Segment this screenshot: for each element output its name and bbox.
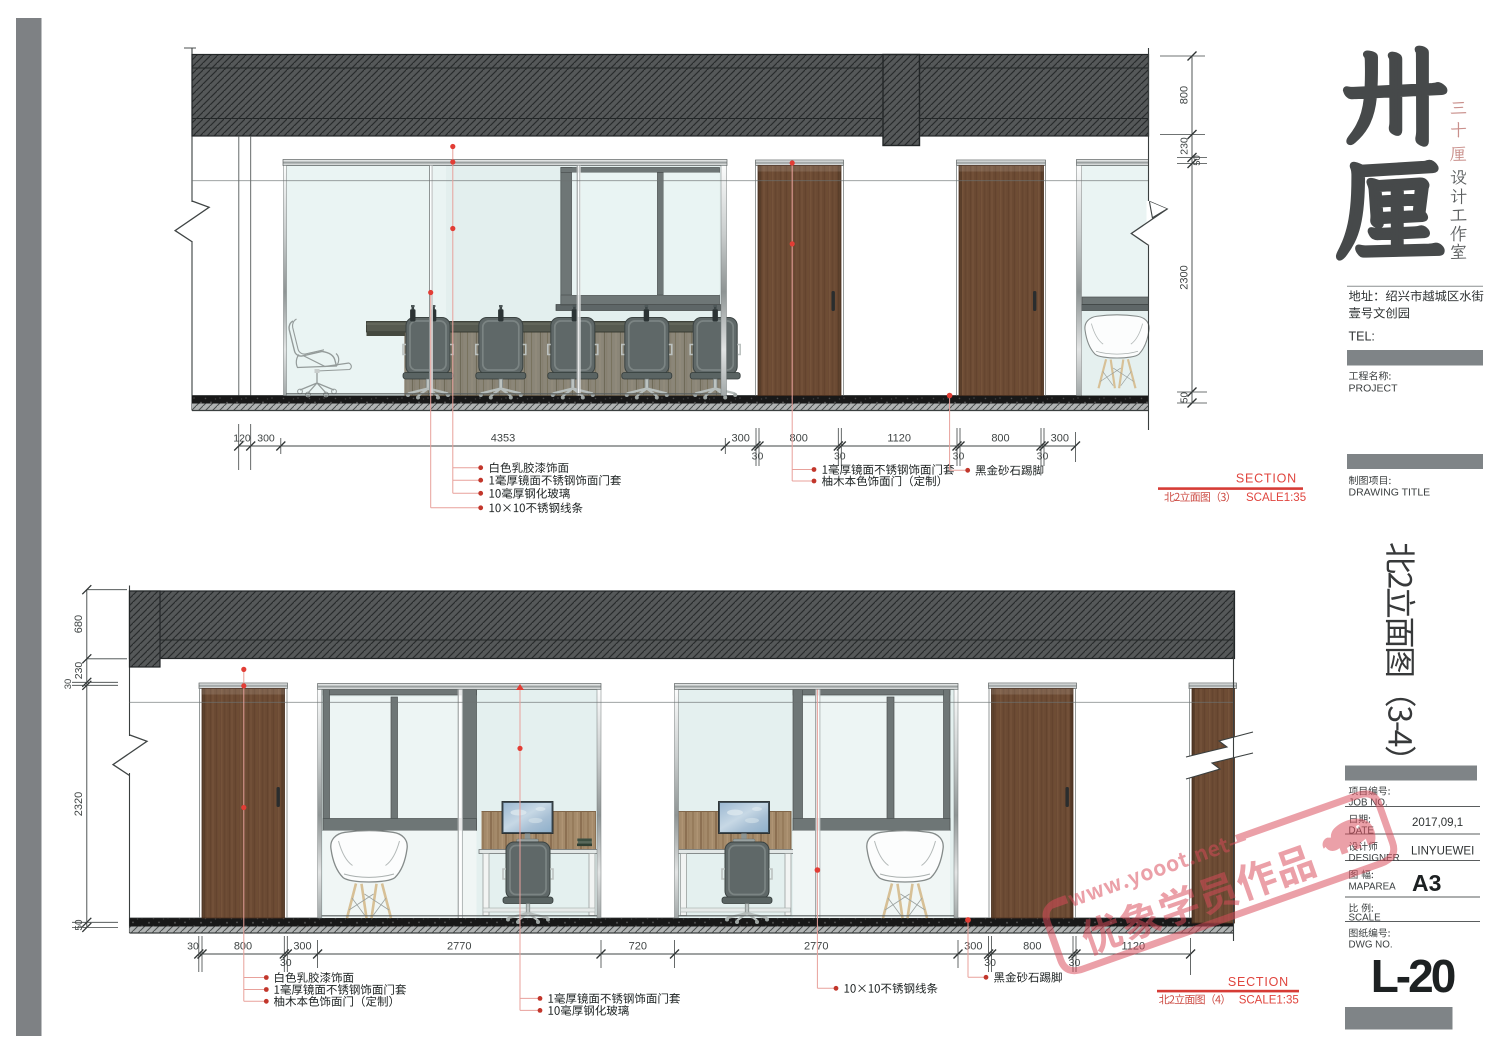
- svg-text:PROJECT: PROJECT: [1349, 383, 1399, 395]
- svg-text:4353: 4353: [491, 433, 515, 445]
- svg-text:30: 30: [953, 451, 965, 463]
- svg-text:800: 800: [234, 941, 252, 953]
- svg-text:300: 300: [293, 941, 311, 953]
- svg-text:DWG NO.: DWG NO.: [1349, 940, 1393, 951]
- svg-text:DRAWING TITLE: DRAWING TITLE: [1349, 487, 1431, 499]
- svg-text:30: 30: [984, 957, 996, 969]
- svg-text:2770: 2770: [447, 941, 471, 953]
- svg-text:300: 300: [257, 433, 275, 445]
- svg-text:230: 230: [1179, 137, 1191, 155]
- svg-text:2770: 2770: [804, 941, 828, 953]
- svg-text:L-20: L-20: [1371, 950, 1455, 1002]
- svg-text:30: 30: [834, 451, 846, 463]
- svg-text:300: 300: [732, 433, 750, 445]
- svg-text:TEL:: TEL:: [1349, 330, 1375, 344]
- svg-text:SECTION: SECTION: [1228, 975, 1289, 989]
- svg-text:2017,09,1: 2017,09,1: [1412, 817, 1463, 829]
- svg-text:800: 800: [991, 433, 1009, 445]
- svg-text:800: 800: [1179, 86, 1191, 104]
- svg-text:30: 30: [63, 679, 74, 690]
- svg-text:230: 230: [73, 662, 85, 680]
- svg-text:SCALE1:35: SCALE1:35: [1246, 492, 1306, 504]
- svg-text:LINYUEWEI: LINYUEWEI: [1411, 846, 1474, 858]
- svg-text:800: 800: [1023, 941, 1041, 953]
- svg-text:30: 30: [280, 957, 292, 969]
- svg-text:50: 50: [74, 919, 85, 931]
- svg-text:120: 120: [233, 433, 251, 445]
- svg-text:1120: 1120: [887, 433, 911, 445]
- svg-text:680: 680: [73, 615, 85, 633]
- svg-text:30: 30: [187, 941, 199, 953]
- svg-text:50: 50: [1180, 392, 1191, 404]
- svg-text:300: 300: [964, 941, 982, 953]
- svg-text:A3: A3: [1412, 870, 1441, 896]
- svg-text:50: 50: [1192, 155, 1203, 166]
- svg-text:SCALE: SCALE: [1349, 912, 1382, 923]
- svg-text:SCALE1:35: SCALE1:35: [1239, 995, 1299, 1007]
- svg-text:300: 300: [1051, 433, 1069, 445]
- svg-text:2320: 2320: [73, 792, 85, 816]
- svg-text:30: 30: [752, 451, 764, 463]
- svg-text:30: 30: [1037, 451, 1049, 463]
- svg-text:720: 720: [629, 941, 647, 953]
- svg-text:SECTION: SECTION: [1236, 472, 1297, 486]
- svg-text:MAPAREA: MAPAREA: [1349, 882, 1397, 893]
- svg-text:2300: 2300: [1179, 265, 1191, 289]
